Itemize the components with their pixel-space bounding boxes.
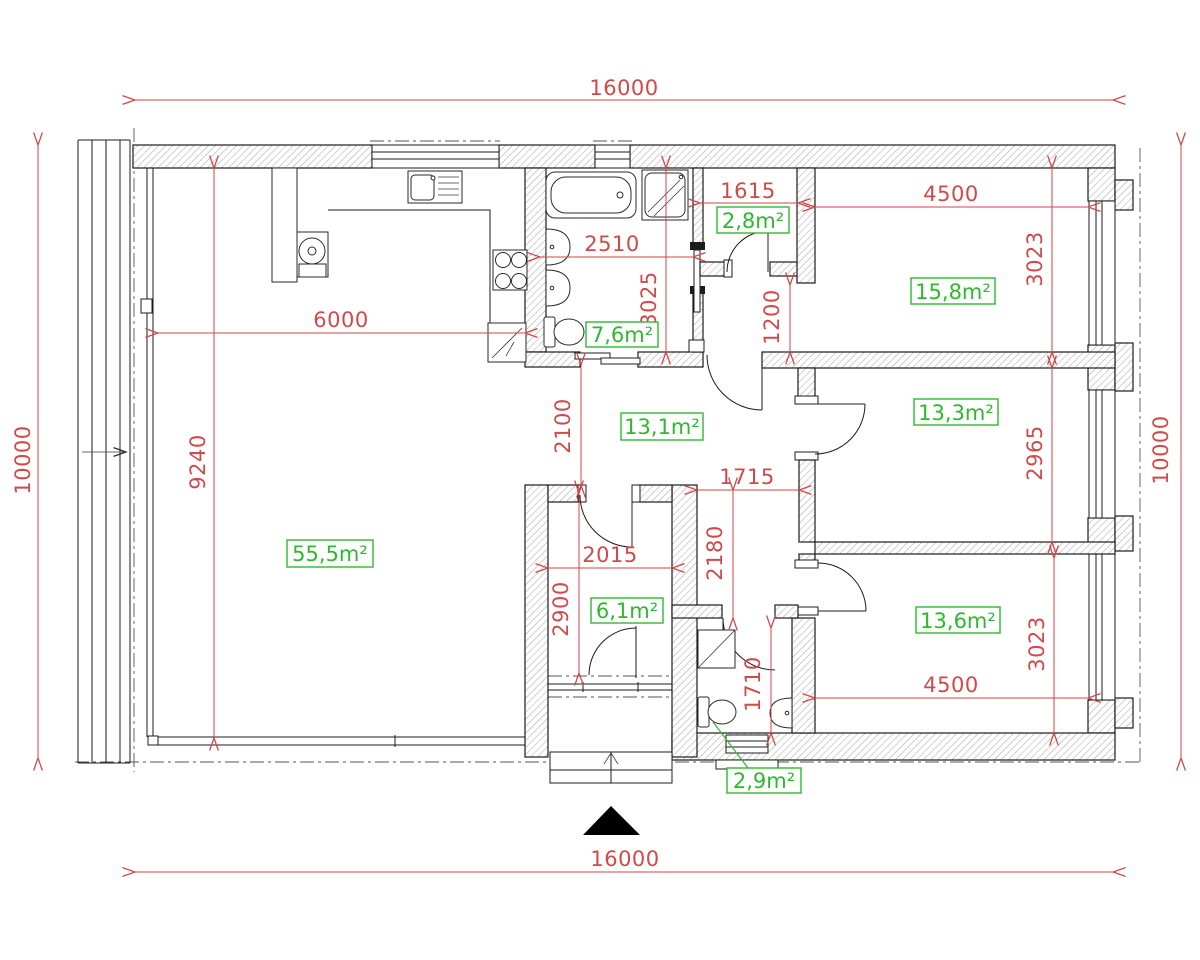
svg-text:3023: 3023: [1025, 616, 1049, 671]
bedroom3-door: [818, 563, 866, 611]
entry-hall-door: [580, 495, 632, 547]
svg-text:2100: 2100: [551, 398, 575, 453]
oven: [297, 232, 328, 277]
svg-text:6000: 6000: [313, 308, 368, 332]
pocket-door-leaf: [694, 250, 700, 312]
cooktop: [493, 250, 527, 290]
dimension-bed1-height: 3023: [1023, 168, 1052, 352]
svg-text:1715: 1715: [719, 465, 774, 489]
closet-door: [727, 228, 768, 272]
svg-text:3025: 3025: [637, 271, 661, 326]
bedroom2-door: [815, 404, 865, 454]
dimension-bottom-16000: 16000: [135, 847, 1113, 872]
bedroom2-window: [1089, 390, 1115, 518]
bathroom-window: [595, 145, 630, 168]
svg-text:55,5m²: 55,5m²: [292, 542, 368, 566]
area-bed2: 13,3m²: [914, 399, 998, 425]
dimension-living-height: 9240: [186, 168, 214, 738]
dimension-entry-width: 2015: [548, 543, 672, 568]
svg-text:4500: 4500: [923, 673, 978, 697]
bathroom-sliding-door: [575, 353, 640, 364]
kitchen-column: [272, 168, 297, 282]
area-closet: 2,8m²: [717, 207, 789, 233]
svg-text:2015: 2015: [582, 543, 637, 567]
svg-text:16000: 16000: [590, 847, 659, 871]
bathroom-toilet: [544, 317, 584, 347]
svg-text:2900: 2900: [549, 581, 573, 636]
wc-toilet: [698, 697, 736, 727]
svg-text:10000: 10000: [1149, 415, 1173, 484]
svg-text:2965: 2965: [1023, 425, 1047, 480]
area-bed1: 15,8m²: [911, 278, 995, 304]
svg-text:2,9m²: 2,9m²: [733, 769, 795, 793]
svg-text:13,6m²: 13,6m²: [920, 609, 996, 633]
bathroom-sink: [546, 229, 570, 265]
svg-text:2180: 2180: [703, 525, 727, 580]
pocket-door-jamb: [690, 242, 705, 250]
dimension-bed1-width: 4500: [815, 182, 1088, 207]
svg-text:1710: 1710: [741, 656, 765, 711]
dimension-bed3-width: 4500: [815, 673, 1088, 698]
area-entry: 6,1m²: [591, 598, 663, 623]
dimension-right-10000: 10000: [1149, 145, 1181, 758]
dimension-left-10000: 10000: [11, 145, 38, 758]
svg-text:2510: 2510: [584, 232, 639, 256]
hall-vestibule-door: [707, 355, 762, 410]
floor-plan-drawing: 16000 16000 10000 10000 6000 9240 2510: [0, 0, 1200, 960]
svg-text:13,3m²: 13,3m²: [918, 401, 994, 425]
floor-plan-page: 16000 16000 10000 10000 6000 9240 2510: [0, 0, 1200, 960]
svg-text:4500: 4500: [923, 182, 978, 206]
svg-text:15,8m²: 15,8m²: [915, 280, 991, 304]
dimension-closet-width: 1615: [700, 179, 798, 203]
svg-text:7,6m²: 7,6m²: [591, 323, 653, 347]
dimension-corridor-width: 1715: [697, 465, 799, 490]
dimension-living-width: 6000: [158, 308, 525, 333]
wc-shower-tray: [698, 630, 735, 668]
kitchen-window: [372, 145, 499, 168]
kitchen-sink: [408, 171, 462, 203]
area-living: 55,5m²: [287, 540, 373, 567]
svg-text:1200: 1200: [760, 289, 784, 344]
area-hall: 13,1m²: [621, 413, 703, 440]
svg-text:2,8m²: 2,8m²: [722, 209, 784, 233]
area-bath: 7,6m²: [586, 322, 658, 347]
bedroom1-window: [1089, 201, 1115, 345]
dimension-wc-height: 1710: [741, 628, 771, 733]
svg-text:1615: 1615: [720, 179, 775, 203]
dimension-hall-height: 2100: [551, 365, 581, 485]
dimension-bed3-height: 3023: [1025, 558, 1054, 733]
wc-sink: [770, 698, 792, 728]
svg-text:9240: 9240: [186, 434, 210, 489]
shower-cabin: [642, 170, 688, 220]
dimension-entry-height: 2900: [549, 493, 579, 673]
glazing-joint: [141, 299, 152, 313]
bathtub: [546, 172, 636, 218]
dimension-top-16000: 16000: [135, 76, 1113, 100]
axis-centerlines: [75, 128, 1140, 772]
area-bed3: 13,6m²: [916, 607, 1000, 633]
bedroom3-window: [1089, 550, 1115, 700]
svg-text:3023: 3023: [1023, 231, 1047, 286]
dimension-corridor-height: 2180: [703, 490, 733, 618]
entrance-porch: [550, 752, 672, 835]
dimension-vestibule-height: 1200: [760, 285, 790, 352]
svg-text:16000: 16000: [589, 76, 658, 100]
dimension-bed2-height: 2965: [1023, 368, 1052, 542]
svg-text:13,1m²: 13,1m²: [624, 415, 700, 439]
bathroom-sink: [546, 270, 570, 306]
entrance-marker: [583, 806, 640, 835]
svg-text:6,1m²: 6,1m²: [596, 599, 658, 623]
svg-text:10000: 10000: [11, 425, 35, 494]
